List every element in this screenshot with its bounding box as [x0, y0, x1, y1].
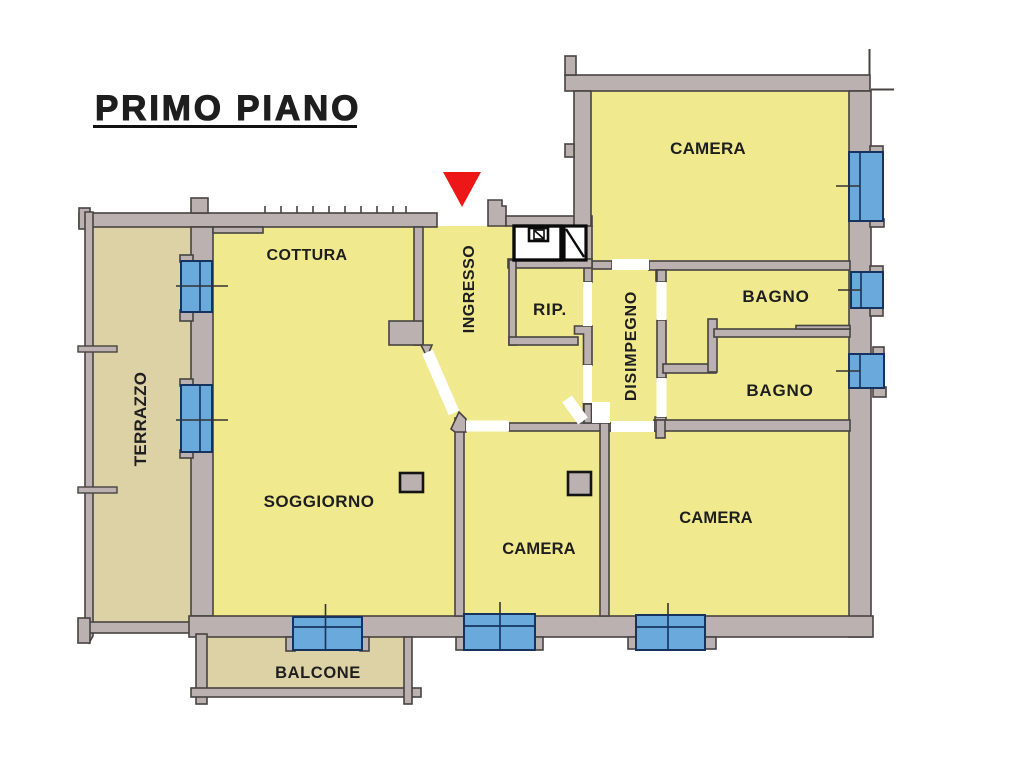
svg-text:PRIMO PIANO: PRIMO PIANO — [95, 89, 361, 128]
svg-text:CAMERA: CAMERA — [670, 139, 746, 158]
svg-text:CAMERA: CAMERA — [502, 540, 576, 558]
svg-text:TERRAZZO: TERRAZZO — [131, 372, 150, 467]
svg-text:BALCONE: BALCONE — [275, 664, 361, 682]
svg-text:SOGGIORNO: SOGGIORNO — [264, 492, 375, 511]
svg-text:BAGNO: BAGNO — [746, 381, 813, 400]
svg-text:BAGNO: BAGNO — [742, 287, 809, 306]
svg-text:RIP.: RIP. — [533, 300, 567, 319]
svg-text:CAMERA: CAMERA — [679, 509, 753, 527]
svg-text:COTTURA: COTTURA — [266, 247, 347, 264]
svg-text:DISIMPEGNO: DISIMPEGNO — [623, 291, 640, 401]
svg-text:INGRESSO: INGRESSO — [461, 245, 478, 333]
